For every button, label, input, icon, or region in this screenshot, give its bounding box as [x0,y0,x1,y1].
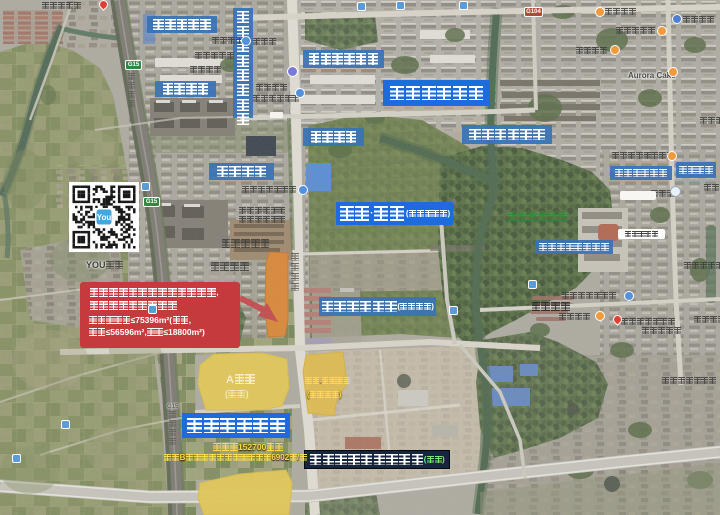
svg-text:You: You [97,213,112,222]
